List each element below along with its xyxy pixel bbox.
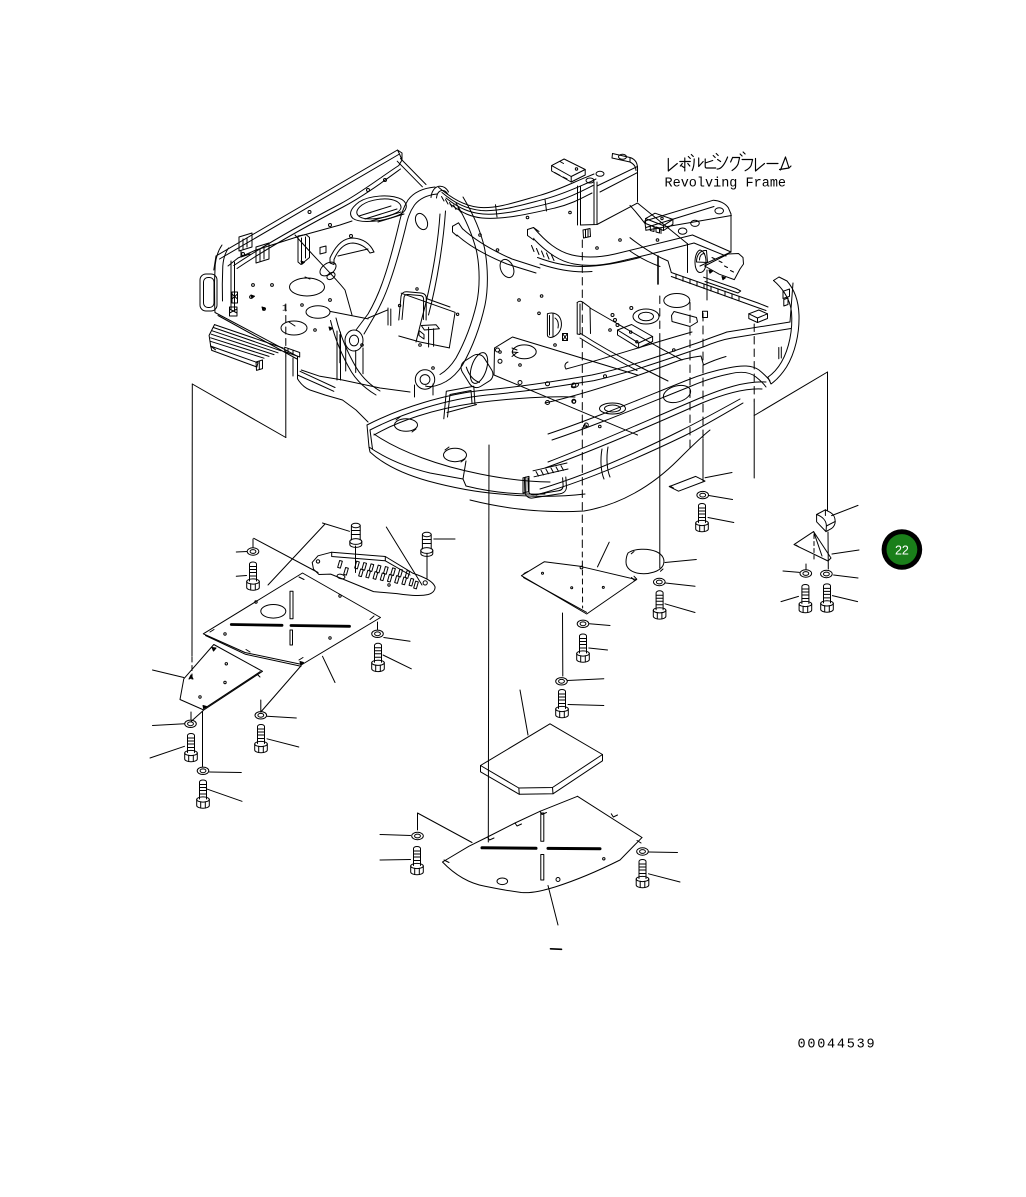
svg-text:00044539: 00044539 [798, 1038, 877, 1053]
svg-text:1: 1 [282, 304, 287, 314]
svg-text:Revolving Frame: Revolving Frame [665, 177, 787, 192]
svg-text:22: 22 [895, 543, 909, 557]
